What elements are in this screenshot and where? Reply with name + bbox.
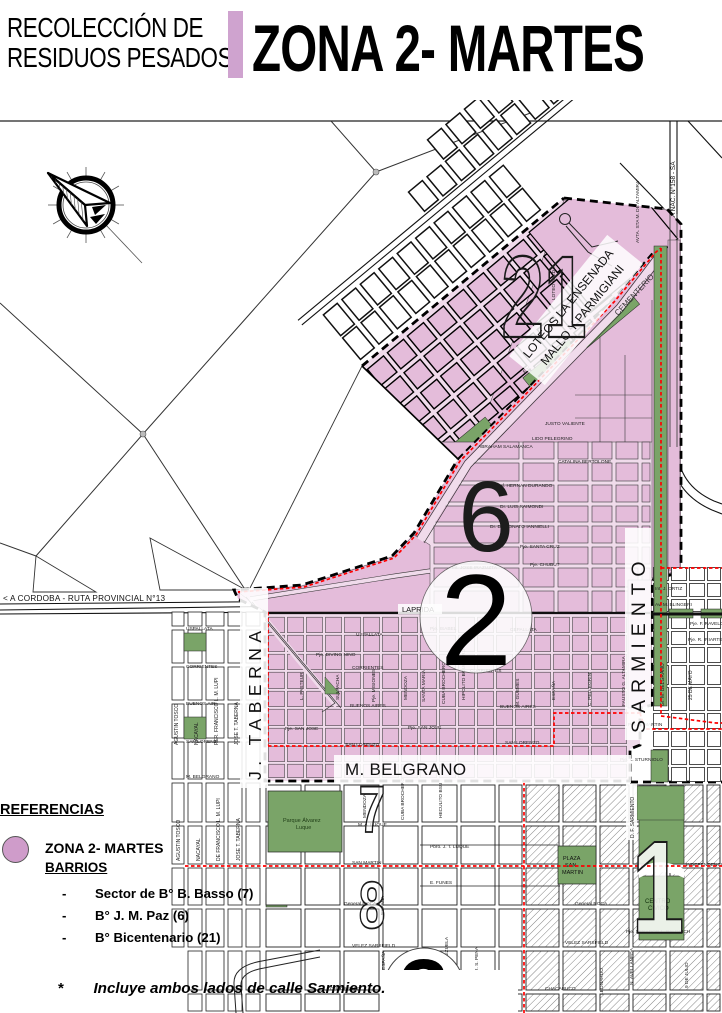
svg-text:SAN LORENZ.: SAN LORENZ. (186, 739, 218, 745)
svg-text:PER. FRANCISCO L. M. LUPI: PER. FRANCISCO L. M. LUPI (214, 677, 220, 745)
svg-text:LIDO PELEGRINO: LIDO PELEGRINO (532, 436, 573, 442)
svg-text:SARMIENTO: SARMIENTO (628, 554, 650, 733)
svg-text:E. FUNES: E. FUNES (430, 880, 452, 886)
svg-text:< A CORDOBA - RUTA PROVINCIAL: < A CORDOBA - RUTA PROVINCIAL N°13 (3, 594, 166, 603)
svg-text:AVTA. STA M. DE ALTAMIRA: AVTA. STA M. DE ALTAMIRA (635, 180, 641, 243)
svg-text:CHACABUCO: CHACABUCO (545, 986, 576, 992)
svg-text:25 DE MAYO: 25 DE MAYO (688, 670, 694, 700)
svg-text:JOSE T. TABERNA: JOSE T. TABERNA (236, 818, 242, 861)
svg-text:CORRIENTES: CORRIENTES (186, 664, 217, 670)
svg-text:BUENOS AIR.: BUENOS AIR. (186, 701, 217, 707)
svg-text:Pje. SAN JOSE: Pje. SAN JOSE (285, 726, 318, 732)
svg-text:1: 1 (632, 815, 685, 962)
svg-text:INDEPENDENCIA: INDEPENDENCIA (686, 862, 722, 868)
svg-text:Pje. SAN JOSE: Pje. SAN JOSE (408, 725, 441, 731)
svg-text:USPALLATA: USPALLATA (356, 632, 383, 638)
svg-text:Luque: Luque (296, 825, 311, 831)
svg-text:Int. J. ORTIZ: Int. J. ORTIZ (655, 586, 682, 592)
svg-text:MENDOZA: MENDOZA (403, 675, 409, 700)
svg-text:CATALINA BERTOLONE: CATALINA BERTOLONE (558, 459, 611, 465)
svg-text:SANTA MARIA: SANTA MARIA (421, 669, 427, 702)
svg-text:General ROCA: General ROCA (575, 901, 608, 907)
svg-text:21: 21 (501, 232, 586, 362)
svg-text:C. PELLEGRINI: C. PELLEGRINI (587, 672, 593, 706)
svg-text:SAN LORENZO: SAN LORENZO (345, 742, 380, 748)
svg-text:Pje. DIVINO NINO: Pje. DIVINO NINO (316, 652, 356, 658)
svg-text:J. TABERNA: J. TABERNA (245, 625, 265, 780)
svg-text:L. PASTEUR: L. PASTEUR (299, 672, 305, 700)
svg-text:USPALLATA: USPALLATA (186, 626, 213, 632)
svg-text:AGUSTIN TOSCO: AGUSTIN TOSCO (176, 820, 182, 861)
svg-text:8: 8 (359, 869, 385, 942)
svg-text:VELEZ SARSFIELD: VELEZ SARSFIELD (565, 940, 609, 946)
svg-text:Pje. MISIONES: Pje. MISIONES (371, 669, 377, 702)
svg-text:AGUSTIN TOSCO: AGUSTIN TOSCO (174, 704, 180, 745)
svg-text:JOSE T. TABERNA: JOSE T. TABERNA (234, 702, 240, 745)
svg-text:Pje. CHUBUT: Pje. CHUBUT (530, 562, 560, 568)
svg-text:MARTIN: MARTIN (562, 870, 583, 876)
svg-text:VELEZ SARSFIELD: VELEZ SARSFIELD (352, 943, 396, 949)
svg-text:BUENOS AIRES: BUENOS AIRES (350, 703, 386, 709)
svg-text:M. BELGRANO: M. BELGRANO (186, 774, 220, 780)
svg-text:Pje. SANTA CRUZ: Pje. SANTA CRUZ (520, 544, 560, 550)
svg-text:ESPAÑA: ESPAÑA (550, 680, 557, 700)
svg-text:SAN MARTIN: SAN MARTIN (352, 860, 382, 866)
svg-text:2: 2 (440, 547, 512, 693)
svg-text:Pbro. J. T. LUQUE: Pbro. J. T. LUQUE (430, 844, 469, 850)
svg-text:LEONARDO: LEONARDO (599, 968, 605, 995)
svg-text:R. S. PENA: R. S. PENA (474, 946, 480, 972)
svg-text:Pje. R. IRIARTE: Pje. R. IRIARTE (688, 637, 722, 643)
svg-text:Pje. F. RAVELO: Pje. F. RAVELO (690, 621, 722, 627)
svg-text:SAN LORENZO: SAN LORENZO (505, 740, 540, 746)
svg-text:ESPAÑA: ESPAÑA (380, 950, 387, 970)
svg-text:9 DE JULIO: 9 DE JULIO (684, 962, 690, 988)
svg-text:JUSTO VALIENTE: JUSTO VALIENTE (545, 421, 585, 427)
svg-text:PLAZA: PLAZA (563, 856, 581, 862)
svg-text:M. GUEMES: M. GUEMES (515, 679, 521, 706)
svg-text:CORRIENTES: CORRIENTES (352, 665, 383, 671)
svg-text:NACAYAL: NACAYAL (196, 838, 202, 861)
svg-text:SULPACHA: SULPACHA (335, 674, 341, 700)
svg-text:ABRAHAM SALAMANCA: ABRAHAM SALAMANCA (478, 444, 533, 450)
